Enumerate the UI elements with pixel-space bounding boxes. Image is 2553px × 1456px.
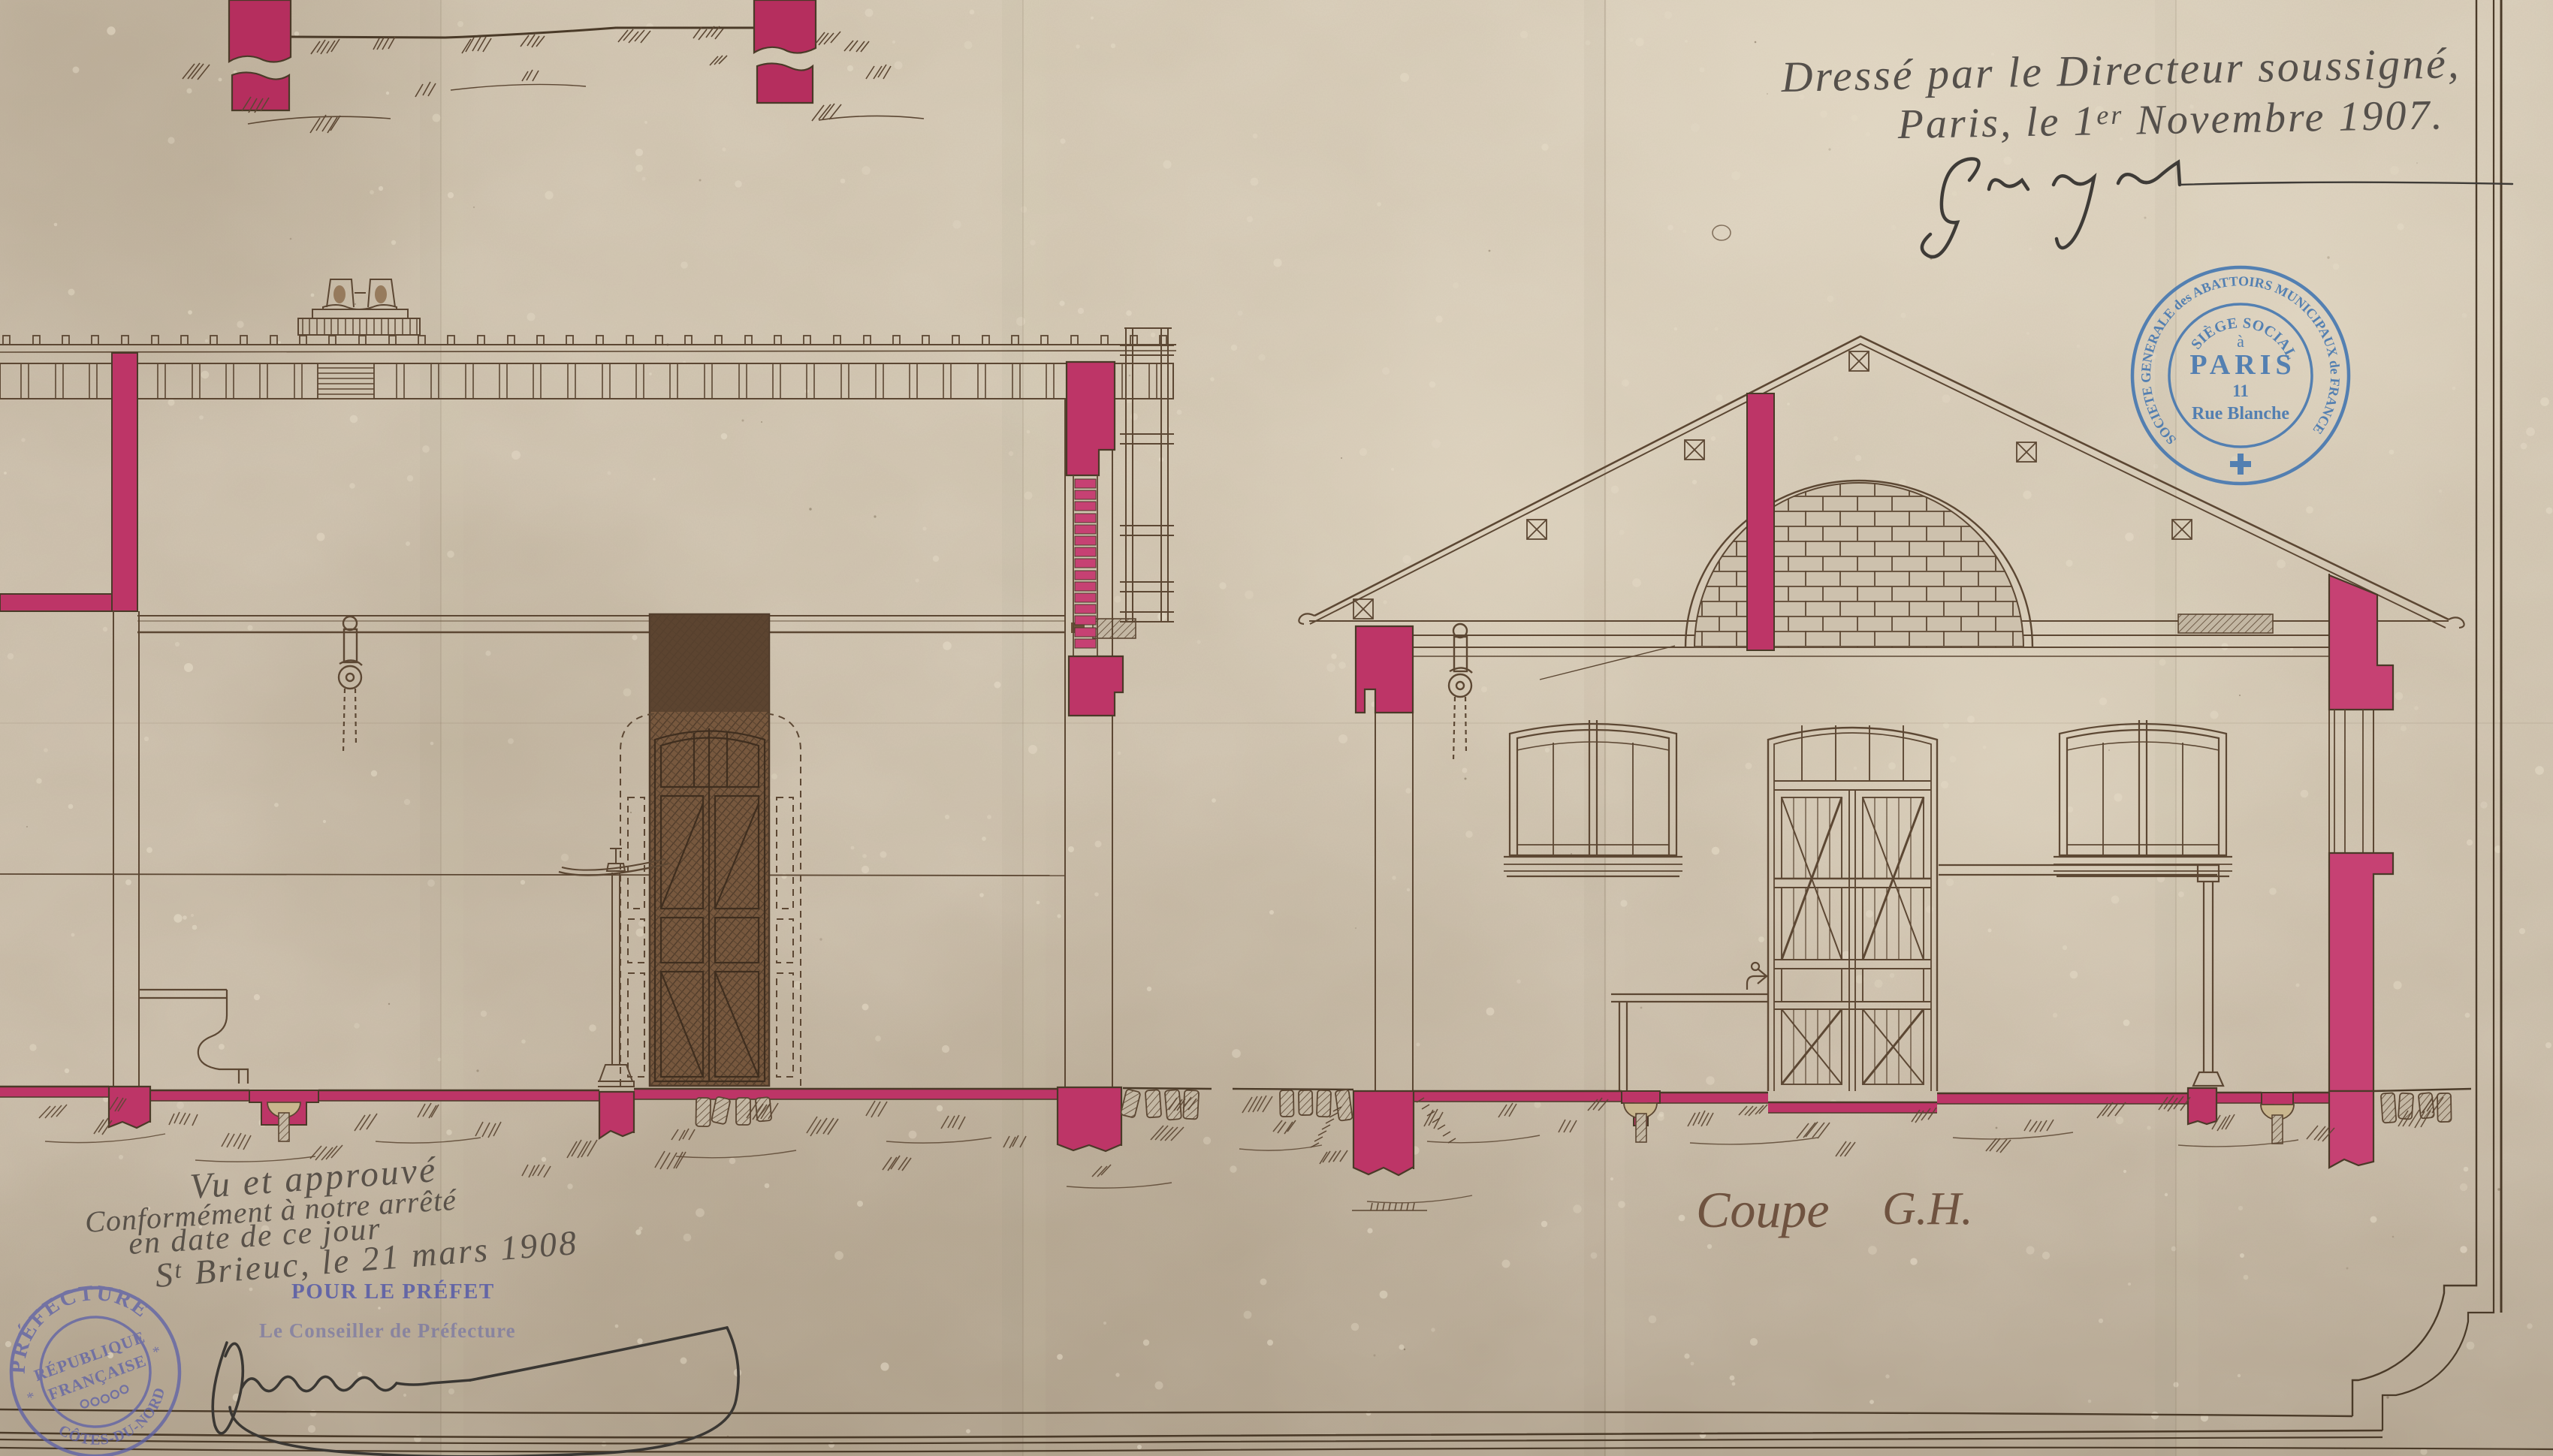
- svg-text:G.H.: G.H.: [1882, 1183, 1973, 1234]
- svg-text:à: à: [2237, 332, 2244, 351]
- svg-text:Rue Blanche: Rue Blanche: [2192, 404, 2289, 424]
- svg-text:Coupe: Coupe: [1696, 1181, 1830, 1238]
- svg-text:POUR LE PRÉFET: POUR LE PRÉFET: [291, 1279, 495, 1304]
- svg-text:Paris, le 1er Novembre 1907.: Paris, le 1er Novembre 1907.: [1897, 92, 2445, 148]
- svg-text:PARIS: PARIS: [2189, 349, 2295, 381]
- svg-text:Le Conseiller de Préfecture: Le Conseiller de Préfecture: [259, 1319, 516, 1342]
- svg-text:11: 11: [2232, 381, 2249, 400]
